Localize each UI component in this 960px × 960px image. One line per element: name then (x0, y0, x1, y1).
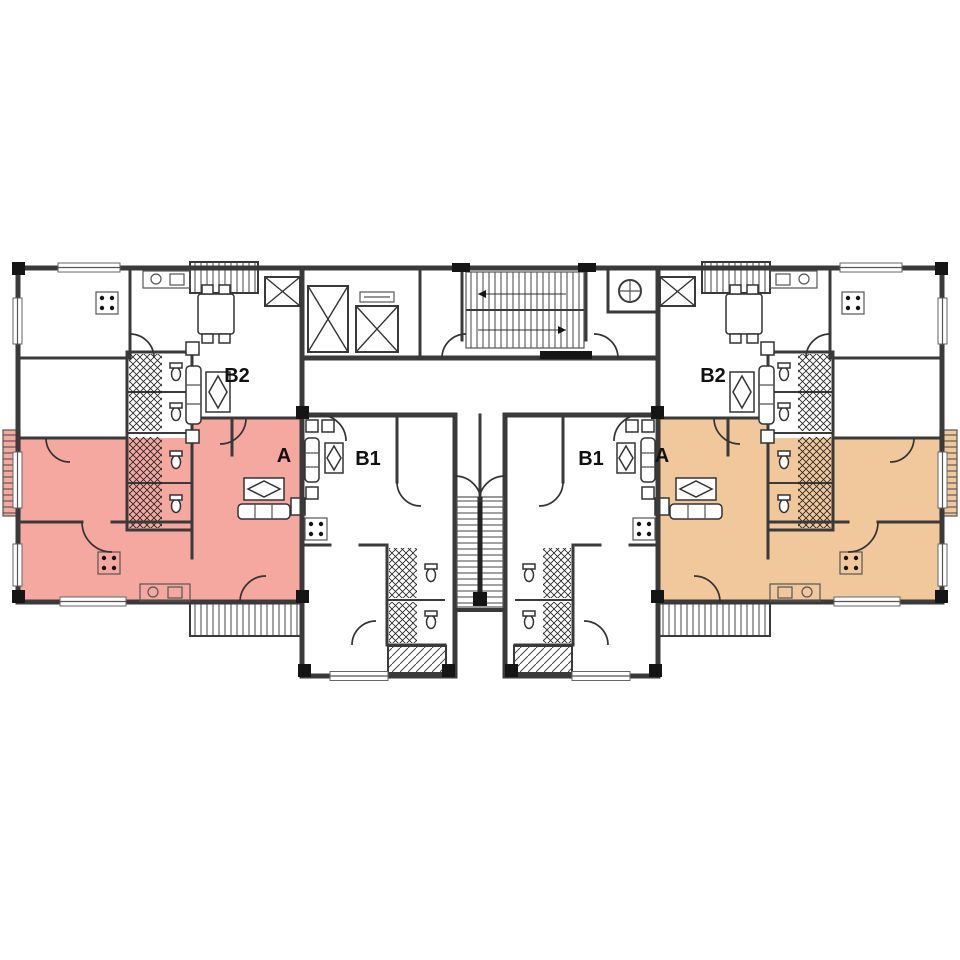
unit-label-a-right: A (655, 445, 669, 467)
balcony-b1-left (388, 646, 446, 673)
balcony-b1-right (514, 646, 572, 673)
unit-label-b2-left: B2 (224, 365, 250, 387)
balcony-left-wing (190, 602, 302, 636)
unit-label-b1-left: B1 (355, 448, 381, 470)
unit-label-b1-right: B1 (578, 448, 604, 470)
floor-plan-page: B2 A B1 B1 A B2 (0, 0, 960, 960)
unit-label-b2-right: B2 (700, 365, 726, 387)
windows (330, 672, 388, 681)
unit-label-a-left: A (277, 445, 291, 467)
floor-plan: B2 A B1 B1 A B2 (0, 0, 960, 960)
dining-table (198, 285, 234, 343)
balcony-right-wing (658, 602, 770, 636)
